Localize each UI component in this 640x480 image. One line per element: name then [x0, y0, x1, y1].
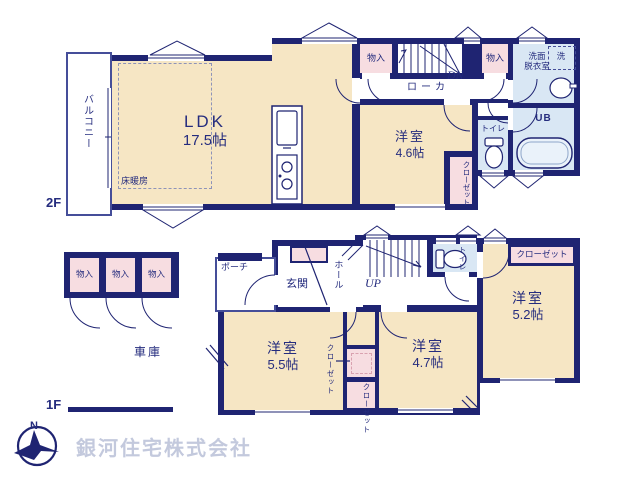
- f2-bedroom-name: 洋室: [370, 130, 450, 145]
- kitchen-counter: [272, 106, 302, 204]
- f1-bedroom-c-size: 5.2帖: [488, 308, 568, 323]
- floor-plan: 2F バルコニー LDK 17.5帖 床暖房 物入 物入 ローカ DN 洗面 脱…: [0, 0, 640, 480]
- f2-toilet-fixture: [485, 138, 503, 168]
- f1-closet-a-label: クローゼット: [317, 344, 335, 380]
- f1-storage-2-label: 物入: [106, 270, 135, 280]
- f2-toilet-label: トイレ: [478, 124, 508, 133]
- f1-bedroom-a-name: 洋室: [243, 340, 323, 356]
- f1-storage-3-label: 物入: [142, 270, 171, 280]
- f2-ldk-size: 17.5帖: [155, 132, 255, 149]
- f1-toilet-label: トイレ: [458, 246, 467, 272]
- f2-balcony-label: バルコニー: [81, 94, 93, 180]
- f2-closet-label: クローゼット: [451, 161, 471, 199]
- f2-corridor-label: ローカ: [407, 82, 449, 94]
- f1-garage-label: 車庫: [134, 346, 162, 360]
- f2-bedroom-size: 4.6帖: [370, 147, 450, 161]
- f2-bath-label: UB: [513, 113, 574, 125]
- bathtub: [517, 138, 572, 168]
- f2-washroom-line2: 脱衣室: [513, 62, 561, 72]
- door-arcs: [70, 79, 537, 338]
- compass-icon: [14, 427, 59, 465]
- company-name: 銀河住宅株式会社: [76, 438, 252, 461]
- f2-storage-b-label: 物入: [481, 53, 509, 63]
- f2-floor-heating-label: 床暖房: [121, 176, 148, 186]
- f1-porch-label: ポーチ: [221, 262, 248, 272]
- f2-floor-label: 2F: [46, 196, 61, 211]
- f1-stairs-treads: [342, 240, 421, 277]
- f1-bedroom-b-name: 洋室: [388, 338, 468, 354]
- f1-stairs-up-label: UP: [365, 277, 381, 291]
- f1-closet-b-label: クローゼット: [349, 383, 371, 407]
- f1-entrance-label: 玄関: [286, 278, 308, 291]
- f1-bedroom-b-size: 4.7帖: [388, 356, 468, 371]
- compass-north-label: N: [30, 420, 38, 433]
- f2-storage-a-label: 物入: [360, 53, 392, 63]
- f1-floor-label: 1F: [46, 398, 61, 413]
- f1-hall-label: ホール: [333, 260, 343, 300]
- plan-linework: [0, 0, 640, 480]
- f2-laundry-label: 洗: [548, 52, 574, 62]
- f2-ldk-name: LDK: [155, 112, 255, 132]
- f1-bedroom-c-name: 洋室: [488, 290, 568, 306]
- washbasin: [550, 78, 577, 98]
- door-gaps: [272, 73, 513, 312]
- f1-storage-1-label: 物入: [70, 270, 99, 280]
- f1-bedroom-a-size: 5.5帖: [243, 358, 323, 373]
- f2-stairs-dn-label: DN: [447, 69, 464, 83]
- f1-closet-c-label: クローゼット: [511, 250, 573, 260]
